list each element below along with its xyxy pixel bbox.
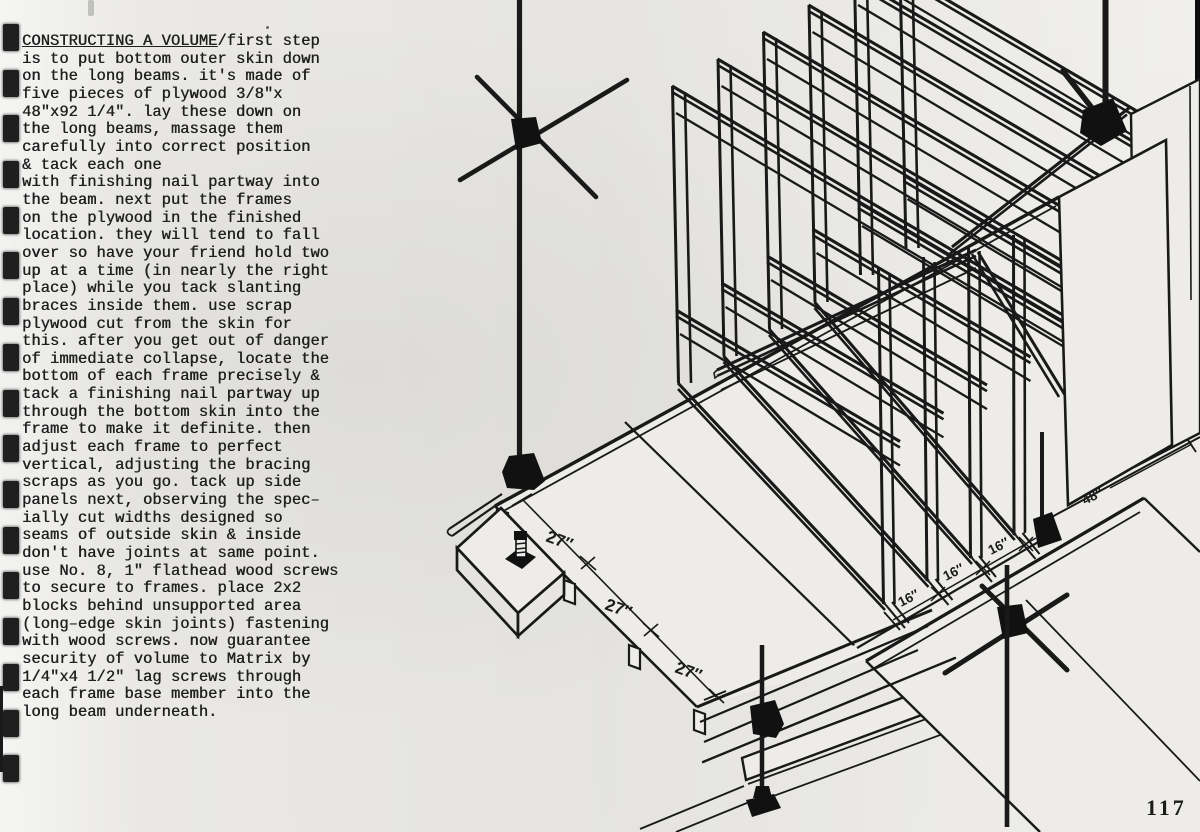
svg-text:117: 117 [1146,795,1187,820]
